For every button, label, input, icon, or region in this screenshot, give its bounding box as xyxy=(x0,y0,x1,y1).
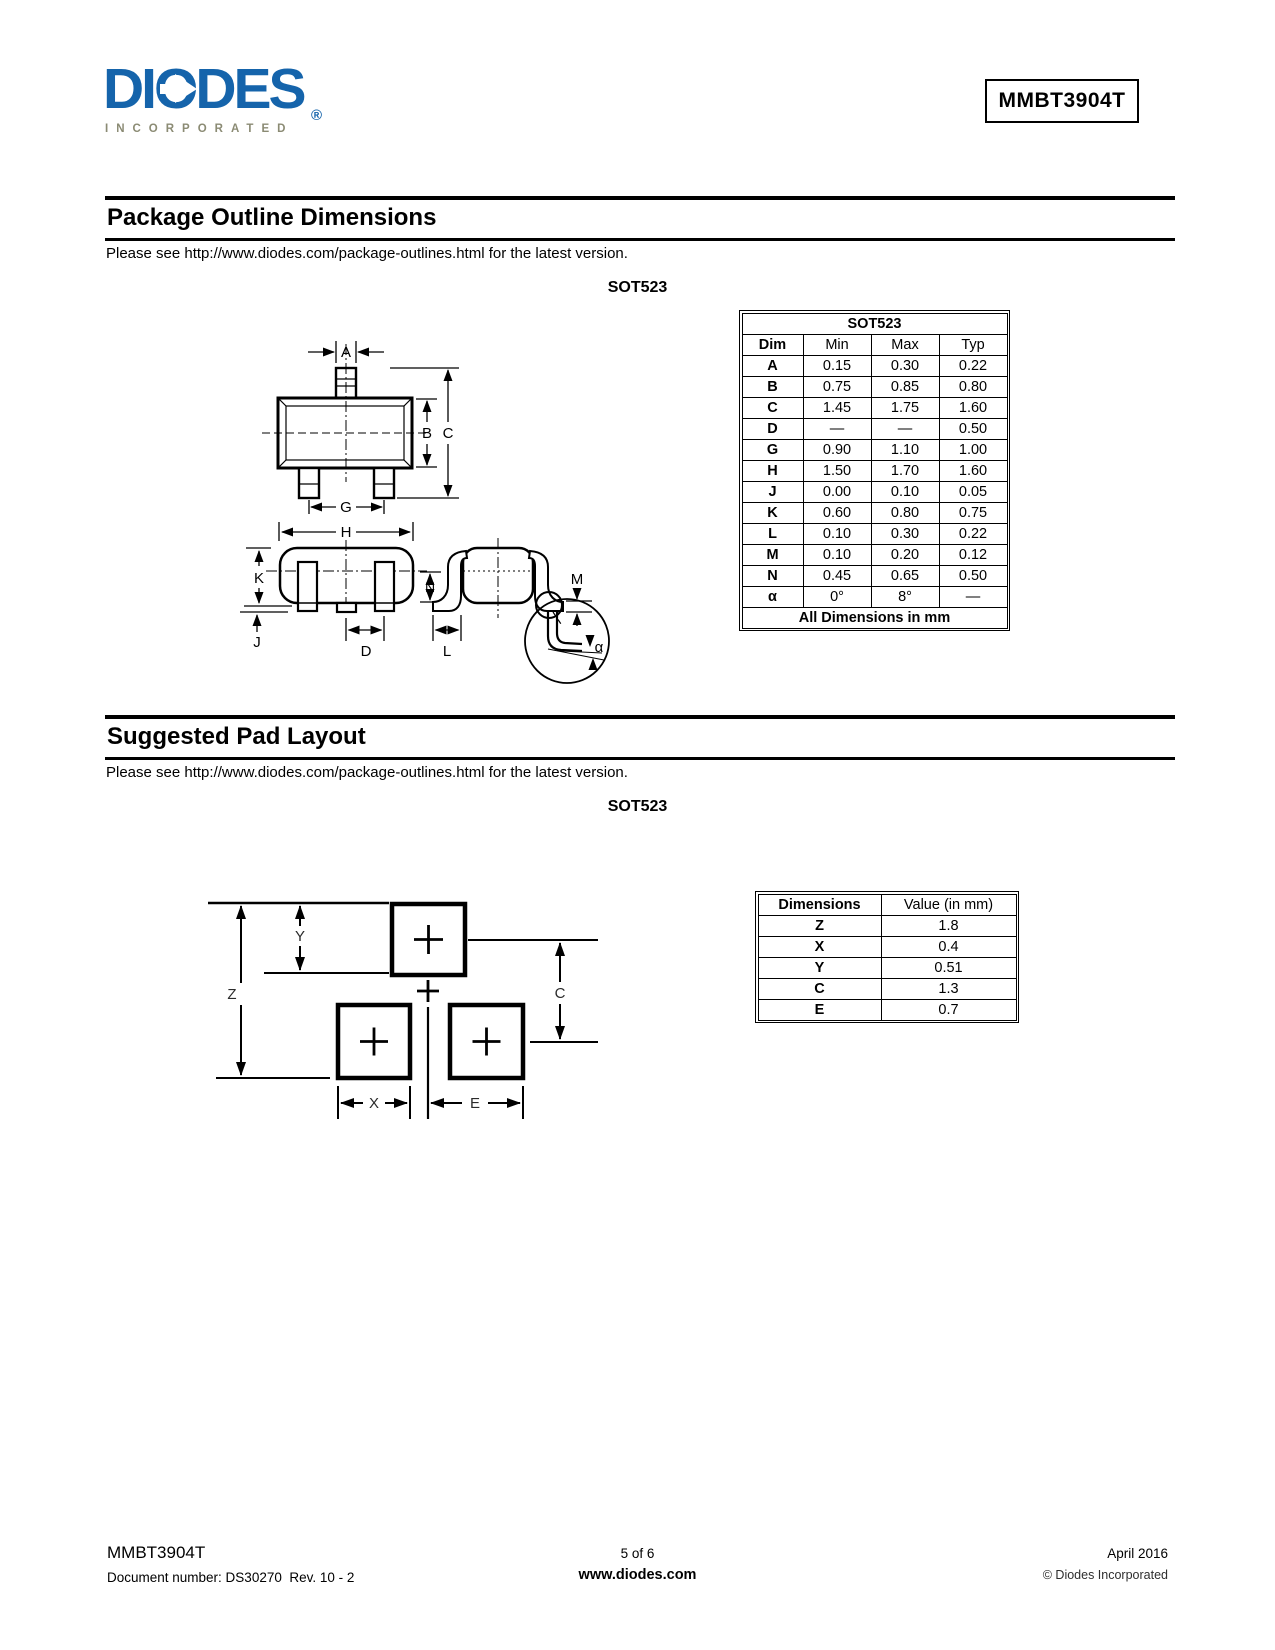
cell: M xyxy=(742,544,803,565)
cell: B xyxy=(742,376,803,397)
cell: — xyxy=(939,586,1007,607)
pad-dim-label-x: X xyxy=(369,1095,379,1112)
footer-doc-number: Document number: DS30270 Rev. 10 - 2 xyxy=(107,1570,354,1585)
footer-date: April 2016 xyxy=(868,1546,1168,1561)
dim-label-j: J xyxy=(253,634,261,651)
logo-registered-mark: ® xyxy=(311,107,322,124)
pad-layout-drawing: Z Y C X E xyxy=(200,845,620,1130)
table-row: Y0.51 xyxy=(758,957,1016,978)
table-title-row: SOT523 xyxy=(742,313,1007,334)
cell: 1.10 xyxy=(871,439,939,460)
table-row: L0.100.300.22 xyxy=(742,523,1007,544)
dim-label-alpha: α xyxy=(595,639,604,656)
dim-label-d: D xyxy=(361,643,372,660)
dim-label-g: G xyxy=(340,499,352,516)
footer-page-number: 5 of 6 xyxy=(480,1546,795,1561)
cell: 0.51 xyxy=(881,957,1016,978)
table-row: D——0.50 xyxy=(742,418,1007,439)
cell: 0.50 xyxy=(939,418,1007,439)
cell: 0.80 xyxy=(939,376,1007,397)
cell: 0.10 xyxy=(803,544,871,565)
cell: Min xyxy=(803,334,871,355)
part-number-box: MMBT3904T xyxy=(985,79,1139,123)
outline-dimension-table: SOT523 Dim Min Max Typ A0.150.300.22 B0.… xyxy=(739,310,1010,631)
cell: 0.20 xyxy=(871,544,939,565)
cell: 0.50 xyxy=(939,565,1007,586)
cell: N xyxy=(742,565,803,586)
section-title-pad-layout: Suggested Pad Layout xyxy=(105,715,1175,760)
part-number: MMBT3904T xyxy=(998,89,1125,113)
cell: 1.60 xyxy=(939,397,1007,418)
cell: Dimensions xyxy=(758,894,881,915)
cell: All Dimensions in mm xyxy=(742,607,1007,628)
datasheet-page: DIODES ® INCORPORATED MMBT3904T Package … xyxy=(0,0,1275,1650)
cell: 0° xyxy=(803,586,871,607)
dim-label-b: B xyxy=(422,425,432,442)
pad-dim-label-e: E xyxy=(470,1095,480,1112)
diodes-logo: DIODES ® INCORPORATED xyxy=(103,56,353,145)
cell: 0.22 xyxy=(939,523,1007,544)
cell: 0.65 xyxy=(871,565,939,586)
table-footer-row: All Dimensions in mm xyxy=(742,607,1007,628)
cell: 0.80 xyxy=(871,502,939,523)
dim-label-h: H xyxy=(341,524,352,541)
footer-website-link[interactable]: www.diodes.com xyxy=(480,1567,795,1583)
table-row: J0.000.100.05 xyxy=(742,481,1007,502)
table-row: E0.7 xyxy=(758,999,1016,1020)
table-row: M0.100.200.12 xyxy=(742,544,1007,565)
dim-label-k: K xyxy=(254,570,264,587)
cell: 0.30 xyxy=(871,355,939,376)
table-row: α0°8°— xyxy=(742,586,1007,607)
cell: 0.4 xyxy=(881,936,1016,957)
dim-label-m: M xyxy=(571,571,584,588)
cell: G xyxy=(742,439,803,460)
cell: 1.60 xyxy=(939,460,1007,481)
cell: 0.75 xyxy=(803,376,871,397)
logo-brand-text: DIODES xyxy=(103,57,305,121)
table-row: B0.750.850.80 xyxy=(742,376,1007,397)
cell: 1.70 xyxy=(871,460,939,481)
cell: K xyxy=(742,502,803,523)
cell: 1.45 xyxy=(803,397,871,418)
cell: A xyxy=(742,355,803,376)
cell: 1.00 xyxy=(939,439,1007,460)
pad-layout-note: Please see http://www.diodes.com/package… xyxy=(106,764,628,781)
pad-dim-label-y: Y xyxy=(295,928,305,945)
package-name-label-outline: SOT523 xyxy=(0,279,1275,297)
cell: 0.00 xyxy=(803,481,871,502)
cell: H xyxy=(742,460,803,481)
cell: 1.8 xyxy=(881,915,1016,936)
section-title-package-outline: Package Outline Dimensions xyxy=(105,196,1175,241)
cell: Z xyxy=(758,915,881,936)
cell: 1.50 xyxy=(803,460,871,481)
dim-label-c: C xyxy=(443,425,454,442)
cell: — xyxy=(871,418,939,439)
table-row: X0.4 xyxy=(758,936,1016,957)
cell: 0.10 xyxy=(871,481,939,502)
table-row: H1.501.701.60 xyxy=(742,460,1007,481)
cell: 0.12 xyxy=(939,544,1007,565)
cell: α xyxy=(742,586,803,607)
table-row: Z1.8 xyxy=(758,915,1016,936)
cell: Dim xyxy=(742,334,803,355)
cell: 1.3 xyxy=(881,978,1016,999)
cell: 0.75 xyxy=(939,502,1007,523)
package-outline-drawing: A B xyxy=(140,300,700,710)
cell: 0.30 xyxy=(871,523,939,544)
cell: Max xyxy=(871,334,939,355)
cell: 0.10 xyxy=(803,523,871,544)
cell: 0.05 xyxy=(939,481,1007,502)
cell: C xyxy=(742,397,803,418)
cell: L xyxy=(742,523,803,544)
table-row: A0.150.300.22 xyxy=(742,355,1007,376)
dim-label-l: L xyxy=(443,643,451,660)
cell: — xyxy=(803,418,871,439)
dim-label-n: N xyxy=(425,579,435,595)
cell: SOT523 xyxy=(742,313,1007,334)
cell: 0.60 xyxy=(803,502,871,523)
cell: X xyxy=(758,936,881,957)
table-header-row: Dimensions Value (in mm) xyxy=(758,894,1016,915)
cell: 0.45 xyxy=(803,565,871,586)
pad-dim-label-c: C xyxy=(555,985,566,1002)
cell: 1.75 xyxy=(871,397,939,418)
logo-subtitle: INCORPORATED xyxy=(105,123,293,135)
cell: J xyxy=(742,481,803,502)
pad-layout-table: Dimensions Value (in mm) Z1.8 X0.4 Y0.51… xyxy=(755,891,1019,1023)
cell: D xyxy=(742,418,803,439)
table-header-row: Dim Min Max Typ xyxy=(742,334,1007,355)
cell: E xyxy=(758,999,881,1020)
cell: 0.22 xyxy=(939,355,1007,376)
cell: Value (in mm) xyxy=(881,894,1016,915)
table-row: G0.901.101.00 xyxy=(742,439,1007,460)
table-row: C1.451.751.60 xyxy=(742,397,1007,418)
cell: 0.85 xyxy=(871,376,939,397)
cell: 8° xyxy=(871,586,939,607)
cell: C xyxy=(758,978,881,999)
cell: Y xyxy=(758,957,881,978)
package-outline-note: Please see http://www.diodes.com/package… xyxy=(106,245,628,262)
table-row: K0.600.800.75 xyxy=(742,502,1007,523)
table-row: N0.450.650.50 xyxy=(742,565,1007,586)
footer-copyright: © Diodes Incorporated xyxy=(868,1568,1168,1582)
package-name-label-pad: SOT523 xyxy=(0,798,1275,816)
cell: 0.90 xyxy=(803,439,871,460)
footer-part-number: MMBT3904T xyxy=(107,1543,205,1563)
table-row: C1.3 xyxy=(758,978,1016,999)
cell: 0.7 xyxy=(881,999,1016,1020)
pad-dim-label-z: Z xyxy=(227,986,236,1003)
cell: 0.15 xyxy=(803,355,871,376)
cell: Typ xyxy=(939,334,1007,355)
